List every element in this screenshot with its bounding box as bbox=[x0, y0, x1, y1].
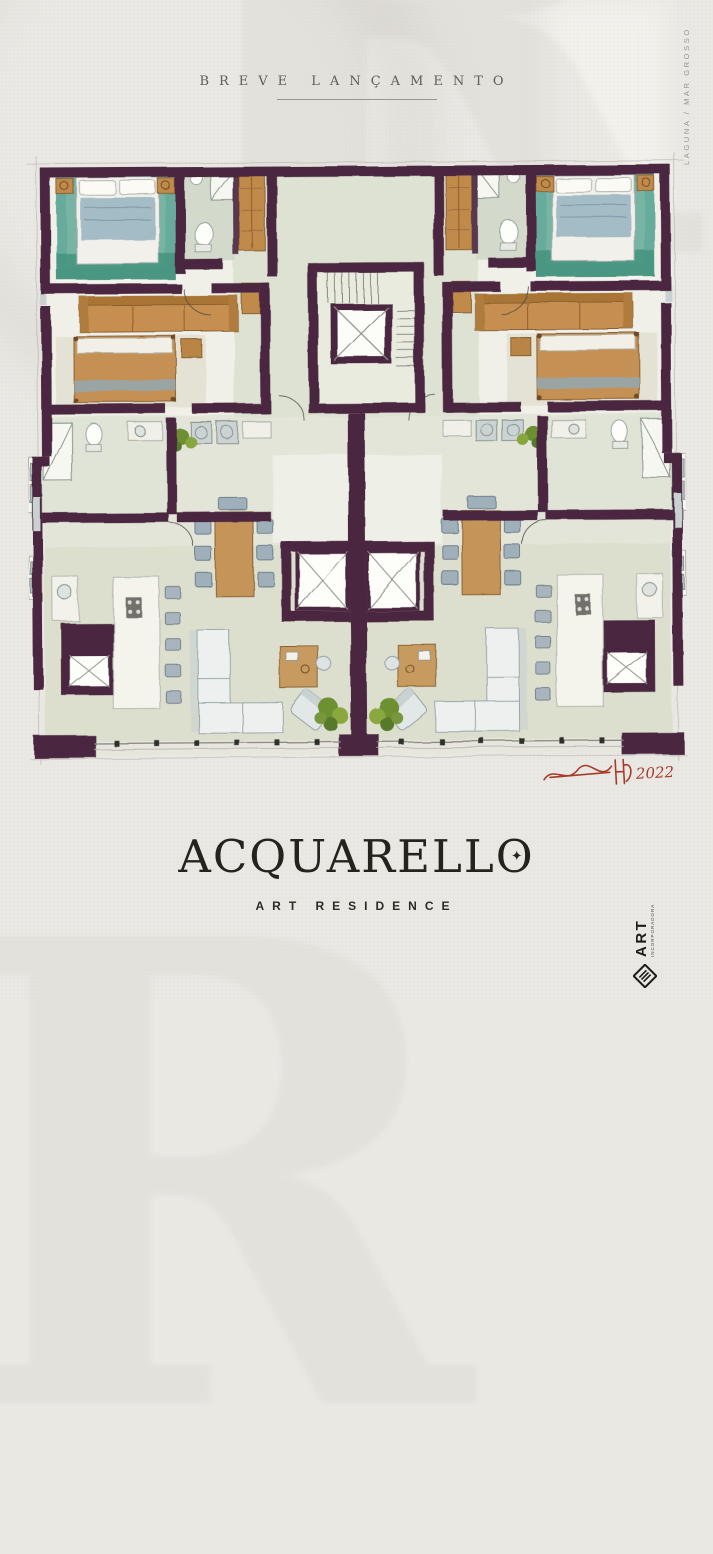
bathroom-top bbox=[185, 169, 236, 262]
location-note: LAGUNA / MAR GROSSO bbox=[682, 26, 691, 166]
developer-logo: ART INCORPORADORA bbox=[630, 868, 660, 988]
wardrobe bbox=[239, 169, 266, 251]
brand-wordmark: ACQUARELLO✦ bbox=[0, 830, 713, 883]
announcement-underline bbox=[277, 99, 437, 100]
second-bedroom bbox=[55, 335, 206, 409]
floorplan-container bbox=[26, 152, 688, 770]
developer-subtext: INCORPORADORA bbox=[651, 904, 656, 957]
elevator bbox=[334, 306, 388, 360]
brand-tagline: ART RESIDENCE bbox=[0, 899, 713, 913]
sofa-brown bbox=[79, 295, 238, 332]
developer-name: ART bbox=[634, 904, 649, 957]
signature-scribble bbox=[539, 750, 651, 796]
floorplan-illustration bbox=[26, 152, 688, 770]
developer-diamond-icon bbox=[633, 964, 657, 988]
watermark-letter-bottom: R bbox=[0, 858, 472, 1498]
master-bedroom bbox=[56, 177, 175, 280]
diamond-icon: ✦ bbox=[511, 848, 525, 864]
poster-page: { "poster": { "announcement": "BREVE LAN… bbox=[0, 0, 713, 1000]
artist-signature: 2022 bbox=[539, 748, 691, 804]
wordmark-text: ACQUARELLO bbox=[178, 830, 534, 883]
announcement-text: BREVE LANÇAMENTO bbox=[0, 74, 713, 89]
signature-year: 2022 bbox=[635, 763, 674, 783]
